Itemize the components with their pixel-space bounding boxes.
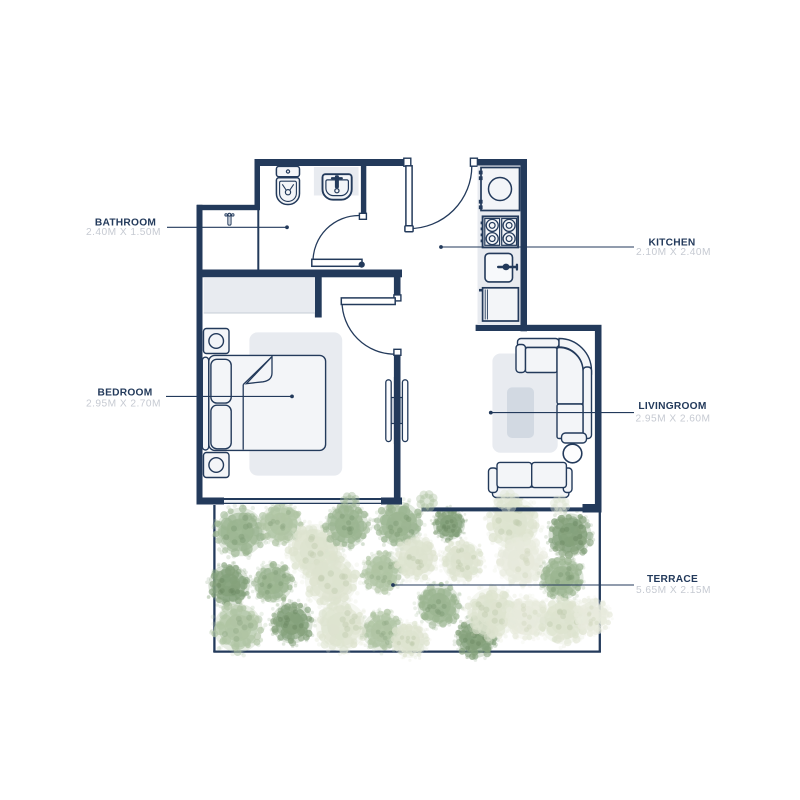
svg-text:2.95M X 2.70M: 2.95M X 2.70M <box>86 398 161 409</box>
svg-text:2.40M X 1.50M: 2.40M X 1.50M <box>86 227 161 238</box>
svg-text:BEDROOM: BEDROOM <box>98 387 153 398</box>
svg-text:5.65M X 2.15M: 5.65M X 2.15M <box>636 585 711 596</box>
svg-text:LIVINGROOM: LIVINGROOM <box>638 401 706 412</box>
svg-text:2.95M X 2.60M: 2.95M X 2.60M <box>636 414 711 425</box>
svg-text:TERRACE: TERRACE <box>647 574 698 585</box>
svg-text:2.10M X 2.40M: 2.10M X 2.40M <box>636 247 711 258</box>
